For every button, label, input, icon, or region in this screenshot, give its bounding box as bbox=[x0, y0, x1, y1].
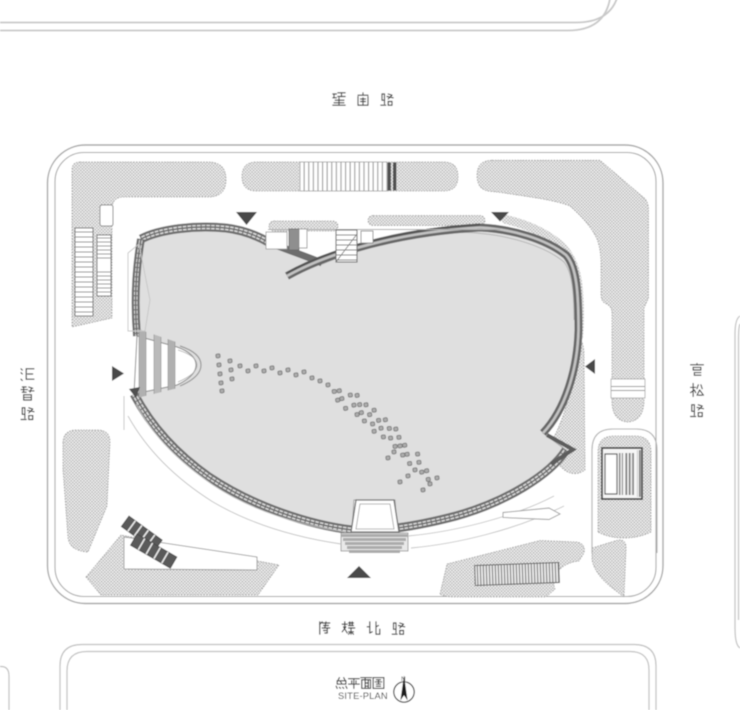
svg-text:SITE-PLAN: SITE-PLAN bbox=[338, 691, 388, 701]
svg-text:N: N bbox=[401, 676, 406, 683]
